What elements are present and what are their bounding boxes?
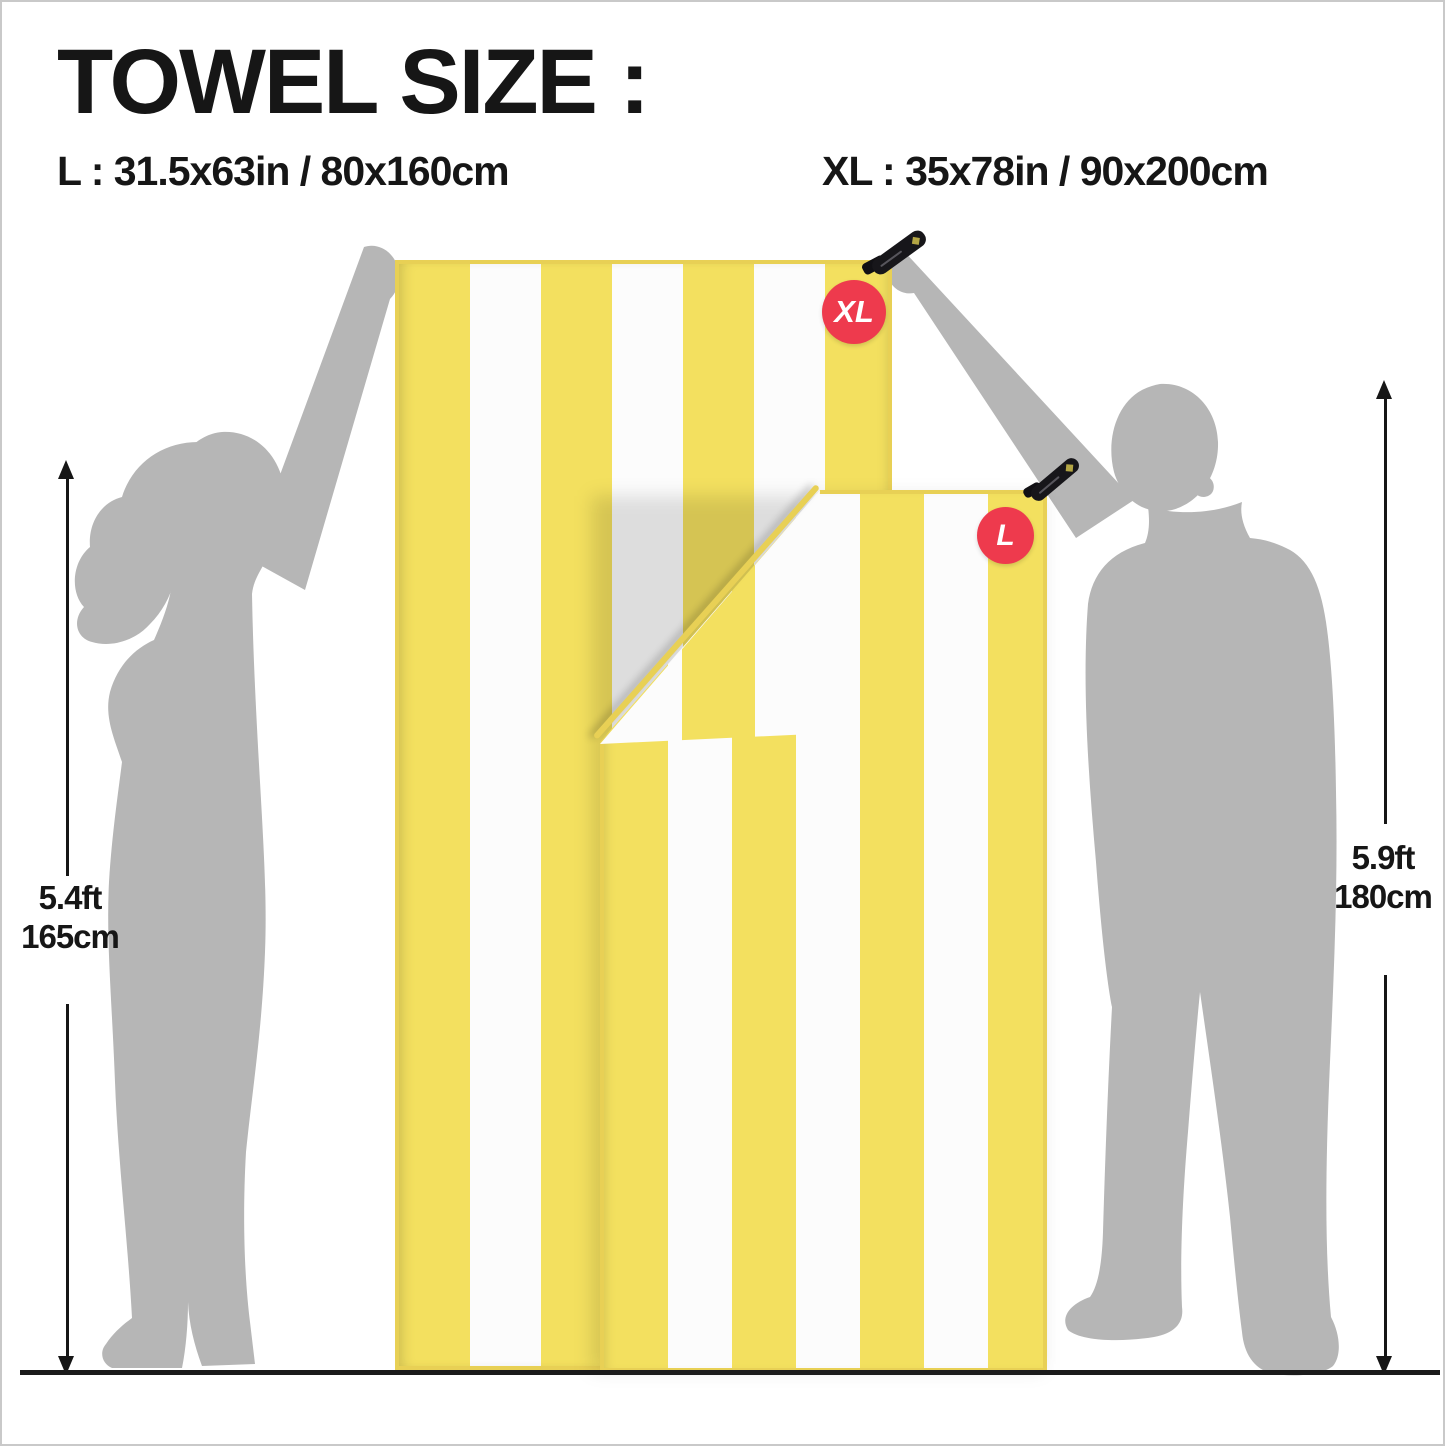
ground-line bbox=[20, 1370, 1440, 1375]
arrow-line-left-lower bbox=[66, 1004, 69, 1356]
badge-l: L bbox=[977, 507, 1034, 564]
arrow-up-icon-left bbox=[58, 460, 74, 479]
tag-logo-dot bbox=[912, 236, 920, 244]
tag-logo-dot bbox=[1065, 464, 1073, 472]
arrow-line-right-lower bbox=[1384, 975, 1387, 1356]
height-cm-right: 180cm bbox=[1320, 877, 1445, 916]
towel-size-infographic: TOWEL SIZE : L : 31.5x63in / 80x160cm XL… bbox=[0, 0, 1445, 1446]
arrow-up-icon-right bbox=[1376, 380, 1392, 399]
height-label-left: 5.4ft 165cm bbox=[2, 878, 138, 956]
female-silhouette bbox=[75, 246, 399, 1368]
height-feet-right: 5.9ft bbox=[1320, 838, 1445, 877]
height-feet-left: 5.4ft bbox=[2, 878, 138, 917]
height-label-right: 5.9ft 180cm bbox=[1320, 838, 1445, 916]
height-cm-left: 165cm bbox=[2, 917, 138, 956]
badge-xl: XL bbox=[822, 280, 886, 344]
arrow-line-right-upper bbox=[1384, 398, 1387, 824]
arrow-line-left-upper bbox=[66, 478, 69, 876]
